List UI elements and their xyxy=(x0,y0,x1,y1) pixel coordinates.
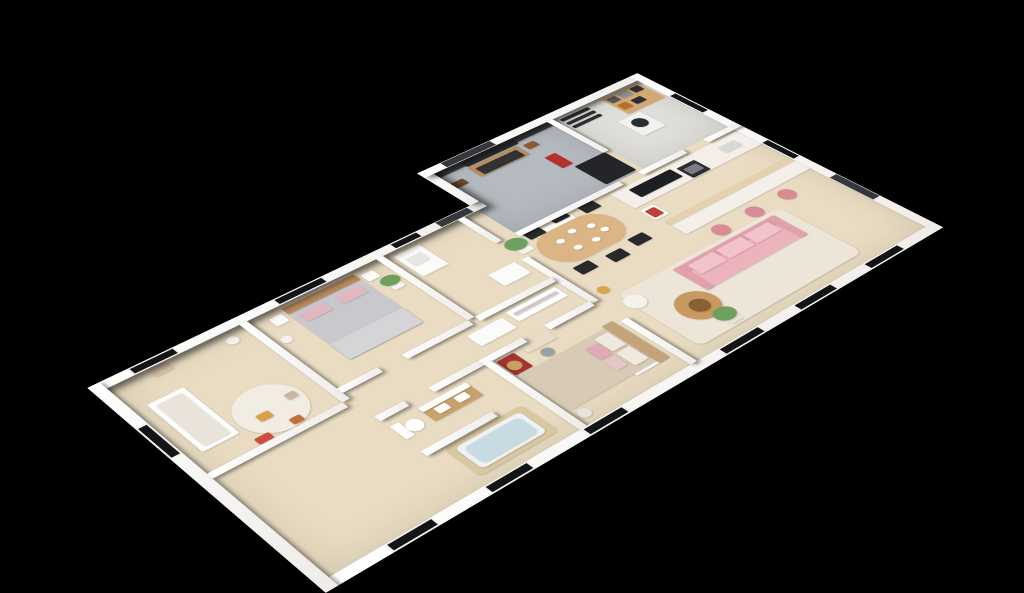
black-background xyxy=(0,0,1024,576)
floorplan-3d-render xyxy=(57,81,925,578)
